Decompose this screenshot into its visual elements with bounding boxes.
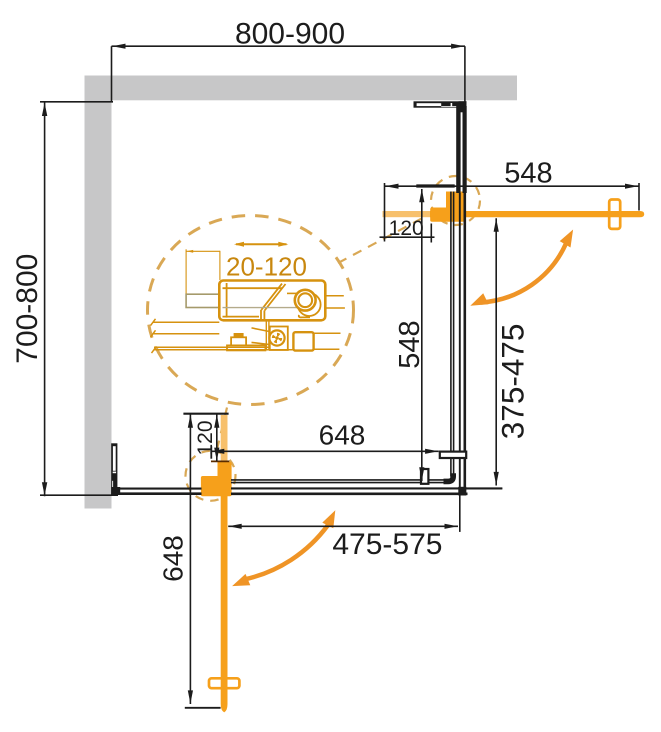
svg-text:548: 548 xyxy=(504,158,552,190)
svg-text:475-575: 475-575 xyxy=(332,528,442,561)
svg-text:648: 648 xyxy=(158,535,189,582)
svg-text:120: 120 xyxy=(194,420,217,455)
svg-text:548: 548 xyxy=(394,320,426,368)
svg-text:700-800: 700-800 xyxy=(11,254,44,364)
svg-text:120: 120 xyxy=(389,217,424,240)
svg-text:20-120: 20-120 xyxy=(226,251,307,281)
svg-text:375-475: 375-475 xyxy=(494,324,530,440)
svg-text:800-900: 800-900 xyxy=(235,18,345,51)
svg-text:648: 648 xyxy=(319,420,366,451)
